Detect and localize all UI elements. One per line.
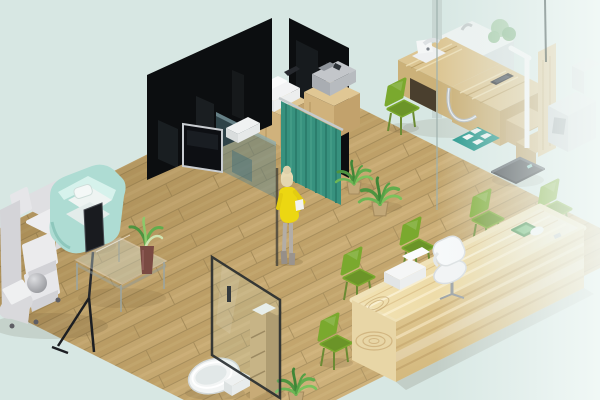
glass-door-handle [227,286,231,302]
ball-lamp [27,273,47,293]
wall-mounted-tv [183,124,222,172]
isometric-clinic-render [0,0,600,400]
frosted-glass-wall [436,0,600,400]
render-canvas [0,0,600,400]
glass-corner-edge [545,0,546,62]
clipboard [295,199,304,211]
vase [140,246,154,274]
